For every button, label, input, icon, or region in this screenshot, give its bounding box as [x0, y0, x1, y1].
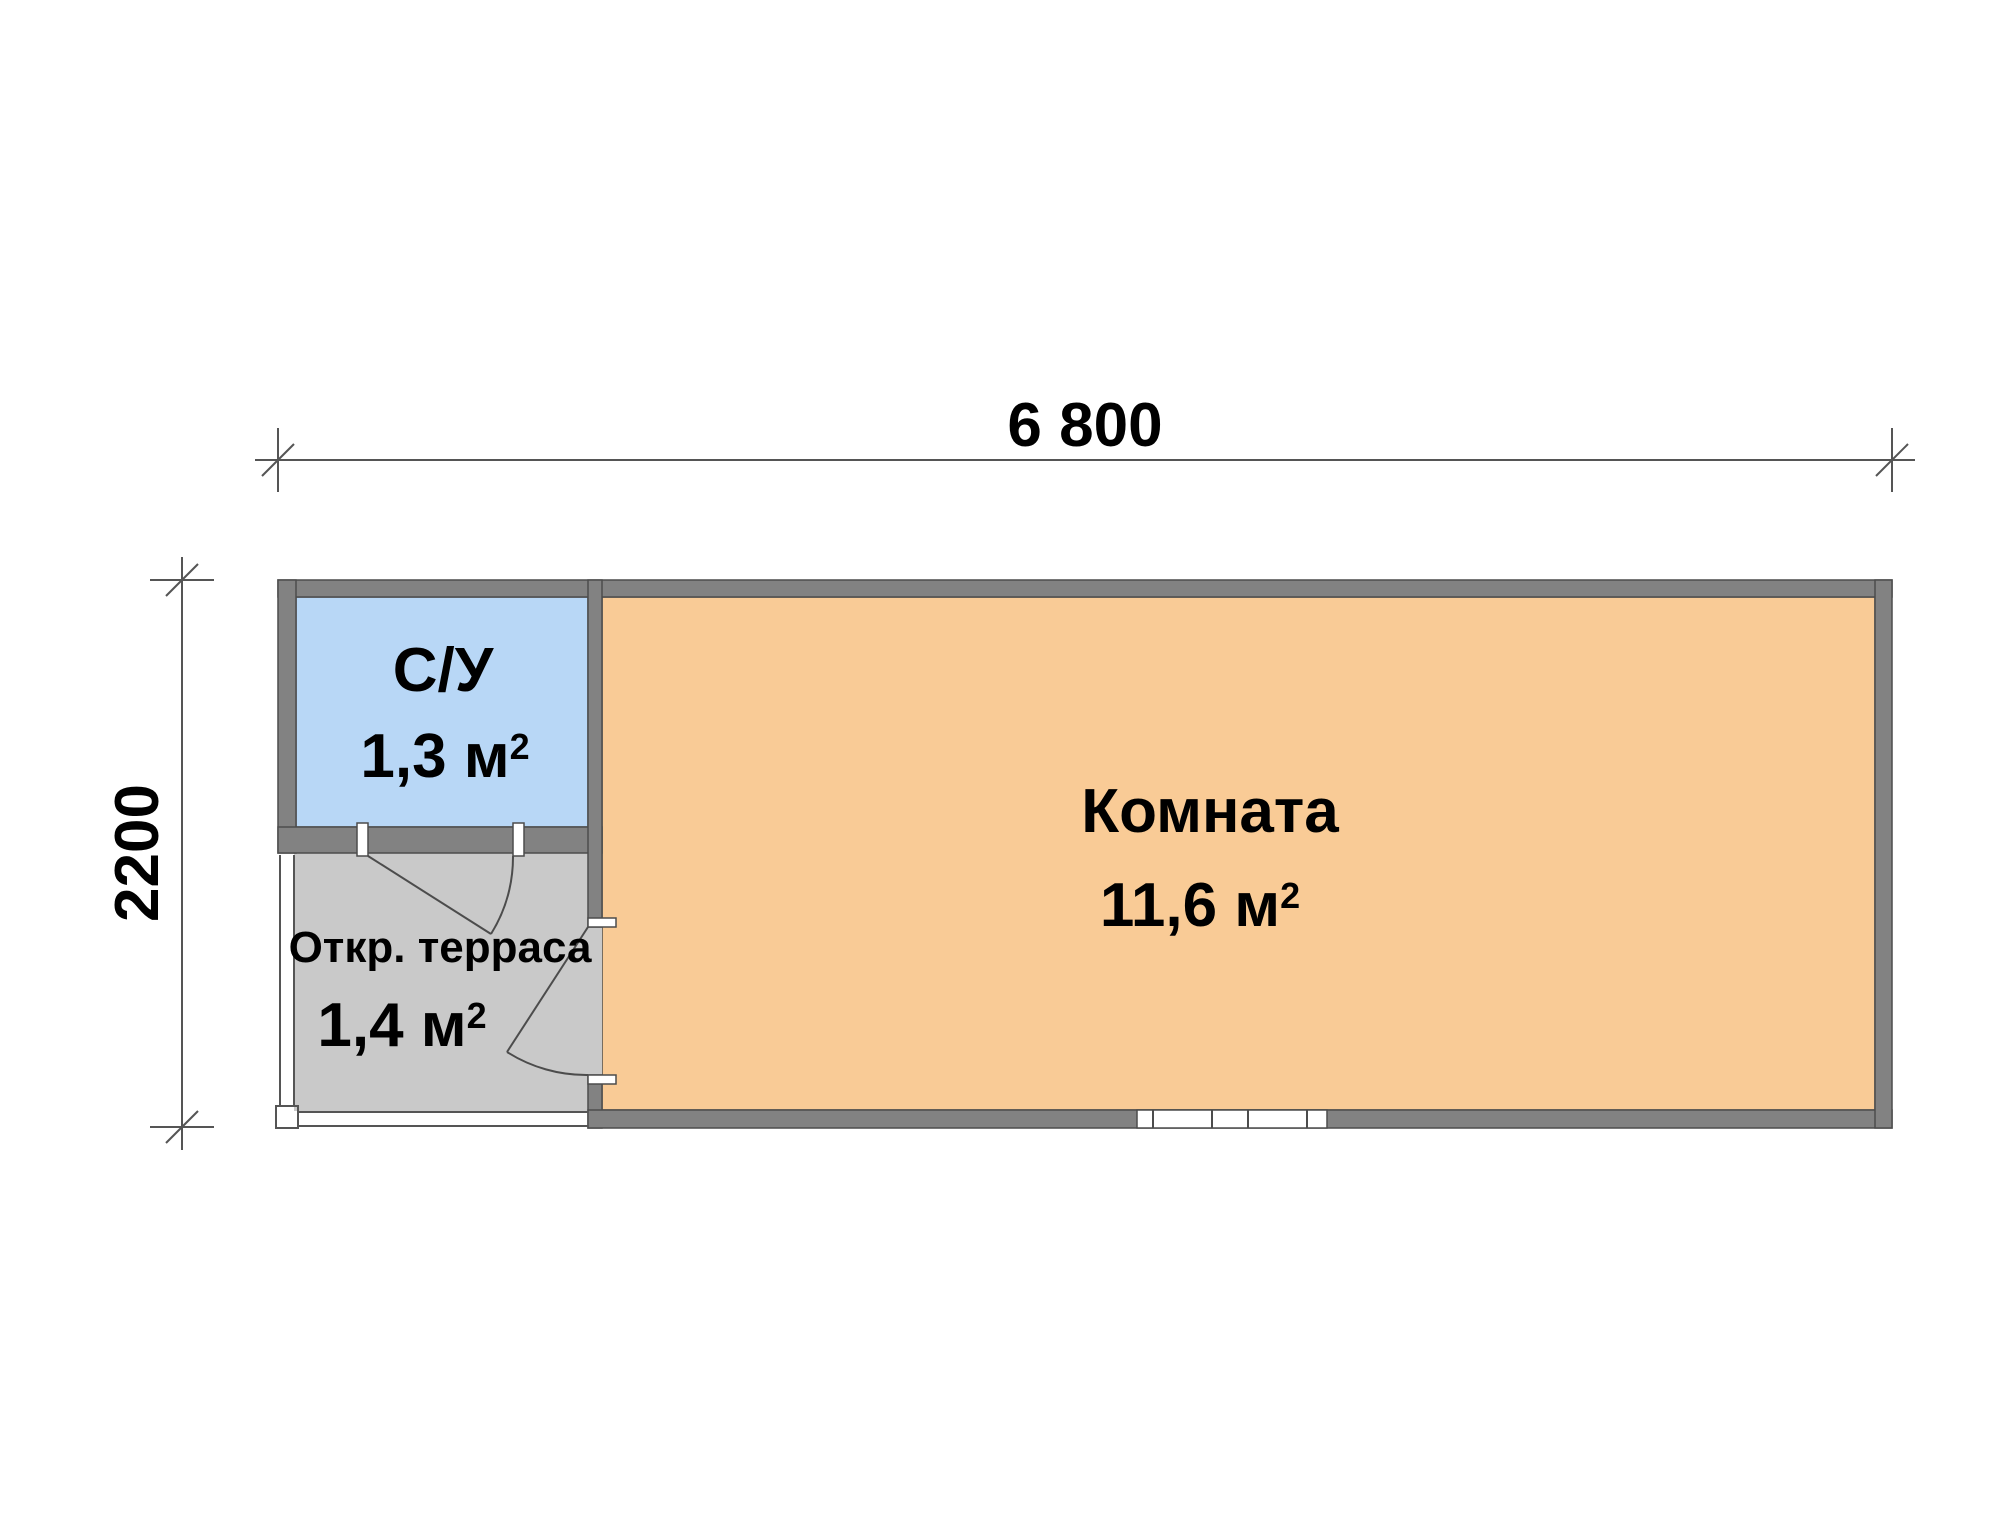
bathroom-floor	[296, 597, 588, 827]
wall-top	[278, 580, 1892, 597]
bathroom-area-superscript: 2	[510, 726, 530, 767]
room-name-label: Комната	[1081, 781, 1339, 843]
wall-divider-upper	[588, 580, 602, 927]
room-door-jamb-bottom	[588, 1075, 616, 1084]
dim-width-label: 6 800	[1007, 395, 1162, 457]
floor-plan-drawing	[0, 0, 2000, 1539]
dim-height-label: 2200	[107, 784, 169, 922]
terrace-area-value: 1,4 м	[317, 991, 466, 1060]
terrace-area-label: 1,4 м2	[317, 995, 486, 1057]
room-area-value: 11,6 м	[1100, 871, 1280, 940]
wall-right	[1875, 580, 1892, 1128]
terrace-name-label: Откр. терраса	[289, 926, 592, 970]
room-area-label: 11,6 м2	[1100, 875, 1300, 937]
wall-left	[278, 580, 296, 853]
bathroom-area-value: 1,3 м	[360, 722, 509, 791]
bathroom-door-jamb-right	[513, 823, 524, 856]
bathroom-name-label: С/У	[393, 640, 494, 702]
wall-bathroom-bottom	[278, 827, 602, 853]
terrace-floor	[294, 853, 588, 1111]
room-area-superscript: 2	[1280, 875, 1300, 916]
room-door-jamb-top	[588, 918, 616, 927]
room-floor	[602, 597, 1875, 1110]
terrace-area-superscript: 2	[467, 995, 487, 1036]
bathroom-area-label: 1,3 м2	[360, 726, 529, 788]
bathroom-door-jamb-left	[357, 823, 368, 856]
window-frame	[1137, 1110, 1327, 1128]
floor-plan-page: 6 800 2200 С/У 1,3 м2 Откр. терраса 1,4 …	[0, 0, 2000, 1539]
